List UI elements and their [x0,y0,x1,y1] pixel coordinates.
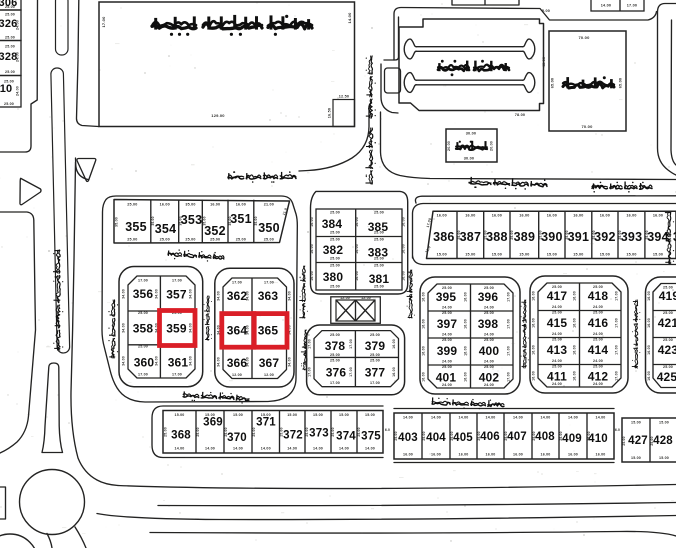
svg-text:70.00: 70.00 [581,124,593,129]
svg-text:34.00: 34.00 [122,323,126,333]
svg-text:129.00: 129.00 [211,113,225,118]
svg-text:16.00: 16.00 [421,292,425,302]
svg-text:34.00: 34.00 [216,357,220,367]
svg-text:16.00: 16.00 [596,453,606,457]
svg-text:15.00: 15.00 [626,253,636,257]
svg-text:17.00: 17.00 [615,345,619,355]
svg-text:25.00: 25.00 [552,285,562,289]
svg-text:15.00: 15.00 [313,413,323,417]
svg-text:24.00: 24.00 [593,305,603,309]
svg-text:16.00: 16.00 [464,319,468,329]
svg-text:24.00: 24.00 [484,306,494,310]
svg-text:357: 357 [166,288,187,302]
svg-text:25.00: 25.00 [210,238,220,242]
svg-text:25.00: 25.00 [370,359,380,363]
svg-text:16.00: 16.00 [355,271,359,281]
svg-text:24.00: 24.00 [593,332,603,336]
svg-text:25.00: 25.00 [457,230,461,239]
svg-text:391: 391 [568,230,589,244]
svg-text:25.00: 25.00 [484,365,494,369]
svg-text:25.00: 25.00 [422,431,426,440]
svg-text:12.00: 12.00 [232,373,242,377]
svg-text:16.00: 16.00 [355,217,359,227]
svg-text:379: 379 [365,339,386,353]
svg-text:17.00: 17.00 [507,346,511,356]
svg-text:16.00: 16.00 [647,371,651,381]
svg-text:15.00: 15.00 [653,253,663,257]
svg-text:372: 372 [283,430,303,442]
svg-text:16.00: 16.00 [310,244,314,254]
svg-text:364: 364 [227,324,248,338]
svg-text:34.00: 34.00 [155,289,159,299]
svg-text:14.00: 14.00 [365,447,375,451]
svg-text:15.00: 15.00 [631,456,641,460]
svg-text:16.00: 16.00 [421,346,425,356]
svg-text:25.00: 25.00 [559,431,563,440]
svg-text:25.00: 25.00 [4,80,14,84]
svg-text:34.00: 34.00 [246,291,250,301]
svg-text:15.00: 15.00 [631,421,641,425]
svg-text:16.00: 16.00 [402,244,406,254]
svg-text:427: 427 [628,435,648,447]
svg-text:15.00: 15.00 [437,253,447,257]
svg-text:15.00: 15.00 [205,413,215,417]
svg-text:15.00: 15.00 [339,413,349,417]
svg-text:34.00: 34.00 [287,357,291,367]
svg-text:17.00: 17.00 [615,371,619,381]
svg-text:17.00: 17.00 [264,281,274,285]
svg-text:17.00: 17.00 [172,372,182,376]
svg-text:16.00: 16.00 [459,453,469,457]
svg-text:25.00: 25.00 [252,427,256,436]
svg-text:399: 399 [437,344,458,358]
svg-text:25.00: 25.00 [331,427,335,436]
svg-text:25.00: 25.00 [264,238,274,242]
svg-text:21.00: 21.00 [264,203,274,207]
svg-text:34.00: 34.00 [189,323,193,333]
svg-text:16.00: 16.00 [392,339,396,349]
svg-text:16.00: 16.00 [531,318,535,328]
svg-text:25.00: 25.00 [663,338,673,342]
svg-text:25.00: 25.00 [4,102,14,106]
svg-text:17.00: 17.00 [615,318,619,328]
svg-text:16.00: 16.00 [402,271,406,281]
svg-text:404: 404 [426,432,446,444]
svg-text:377: 377 [365,366,386,380]
svg-text:380: 380 [323,270,344,284]
svg-text:25.00: 25.00 [330,257,340,261]
svg-text:392: 392 [594,230,615,244]
svg-text:17.00: 17.00 [349,339,353,349]
svg-text:25.00: 25.00 [593,337,603,341]
svg-text:35.00: 35.00 [179,216,183,225]
svg-text:367: 367 [259,356,280,370]
svg-text:354: 354 [155,222,176,236]
svg-text:25.00: 25.00 [5,36,15,40]
svg-text:425: 425 [657,370,676,384]
svg-text:25.00: 25.00 [394,431,398,440]
svg-text:25.00: 25.00 [374,264,384,268]
svg-text:14.00: 14.00 [175,447,185,451]
svg-text:25.00: 25.00 [442,338,452,342]
svg-text:17.00: 17.00 [615,291,619,301]
svg-text:387: 387 [460,230,481,244]
svg-text:395: 395 [436,290,457,304]
svg-text:25.00: 25.00 [280,427,284,436]
svg-text:14.00: 14.00 [568,416,578,420]
svg-text:24.00: 24.00 [442,383,452,387]
svg-text:17.00: 17.00 [627,4,638,8]
svg-text:25.00: 25.00 [484,230,488,239]
svg-text:35.00: 35.00 [202,216,206,225]
svg-text:17.00: 17.00 [349,367,353,377]
svg-text:24.00: 24.00 [484,360,494,364]
svg-text:16.00: 16.00 [541,453,551,457]
svg-text:17.00: 17.00 [370,381,380,385]
svg-text:25.00: 25.00 [236,238,246,242]
svg-text:408: 408 [535,431,555,443]
svg-text:25.00: 25.00 [484,338,494,342]
svg-text:25.00: 25.00 [370,353,380,357]
svg-text:17.00: 17.00 [307,339,311,349]
svg-text:25.00: 25.00 [5,70,15,74]
svg-text:306: 306 [0,0,17,9]
svg-text:16.00: 16.00 [402,217,406,227]
svg-text:388: 388 [486,230,507,244]
svg-text:25.00: 25.00 [370,333,380,337]
svg-text:25.00: 25.00 [330,285,340,289]
svg-text:24.00: 24.00 [16,52,20,62]
svg-text:16.00: 16.00 [573,291,577,301]
svg-text:24.00: 24.00 [16,86,20,96]
svg-text:20.00: 20.00 [490,141,494,151]
svg-text:405: 405 [453,432,473,444]
svg-text:403: 403 [398,432,418,444]
svg-text:24.00: 24.00 [552,332,562,336]
svg-text:16.00: 16.00 [600,214,610,218]
svg-text:428: 428 [653,435,673,447]
svg-text:34.00: 34.00 [287,291,291,301]
svg-text:15.00: 15.00 [573,253,583,257]
svg-text:25.00: 25.00 [127,238,137,242]
svg-text:16.00: 16.00 [531,371,535,381]
svg-text:368: 368 [171,430,191,442]
svg-text:34.00: 34.00 [189,356,193,366]
svg-text:15.00: 15.00 [659,421,669,425]
svg-text:25.00: 25.00 [305,427,309,436]
svg-text:12.50: 12.50 [361,296,371,300]
svg-text:34.00: 34.00 [216,291,220,301]
svg-text:16.00: 16.00 [531,345,535,355]
svg-text:34.00: 34.00 [155,356,159,366]
svg-text:25.00: 25.00 [442,286,452,290]
svg-text:25.00: 25.00 [374,257,384,261]
svg-text:374: 374 [336,431,356,443]
svg-text:12.50: 12.50 [339,95,350,99]
svg-text:15.00: 15.00 [287,413,297,417]
svg-text:14.00: 14.00 [205,447,215,451]
svg-text:14.00: 14.00 [313,447,323,451]
svg-text:6.0: 6.0 [385,428,390,432]
svg-text:370: 370 [227,432,247,444]
svg-text:25.00: 25.00 [510,230,514,239]
svg-text:17.00: 17.00 [307,367,311,377]
svg-text:419: 419 [659,289,676,303]
svg-text:25.00: 25.00 [330,238,340,242]
svg-text:396: 396 [478,290,499,304]
svg-text:361: 361 [168,356,189,370]
svg-text:35.00: 35.00 [115,217,119,227]
svg-text:360: 360 [134,356,155,370]
svg-text:78.00: 78.00 [515,113,526,117]
svg-text:413: 413 [547,343,568,357]
svg-text:24.00: 24.00 [552,382,562,386]
svg-text:16.00: 16.00 [421,319,425,329]
svg-text:6.0: 6.0 [615,428,620,432]
svg-text:24.00: 24.00 [593,359,603,363]
svg-text:415: 415 [547,316,568,330]
svg-text:25.00: 25.00 [374,285,384,289]
svg-text:362: 362 [227,289,248,303]
svg-text:25.00: 25.00 [185,238,195,242]
svg-text:16.00: 16.00 [160,203,170,207]
svg-text:34.00: 34.00 [246,357,250,367]
svg-text:17.00: 17.00 [101,16,106,28]
svg-text:12.00: 12.00 [264,373,274,377]
svg-text:16.00: 16.00 [431,453,441,457]
svg-text:25.00: 25.00 [650,436,654,445]
svg-text:16.00: 16.00 [573,345,577,355]
svg-text:16.00: 16.00 [573,371,577,381]
svg-text:14.00: 14.00 [287,447,297,451]
svg-text:365: 365 [258,324,279,338]
svg-text:16.00: 16.00 [310,217,314,227]
svg-text:16.00: 16.00 [392,367,396,377]
svg-text:16.00: 16.00 [626,214,636,218]
svg-text:16.00: 16.00 [573,214,583,218]
svg-text:359: 359 [166,322,187,336]
svg-text:25.00: 25.00 [663,365,673,369]
svg-text:25.00: 25.00 [618,230,622,239]
svg-text:16.00: 16.00 [486,453,496,457]
svg-text:15.00: 15.00 [492,253,502,257]
svg-text:24.00: 24.00 [484,333,494,337]
svg-text:70.00: 70.00 [578,35,590,40]
svg-text:25.00: 25.00 [532,431,536,440]
svg-text:16.00: 16.00 [465,214,475,218]
svg-text:24.00: 24.00 [484,383,494,387]
svg-text:24.00: 24.00 [552,359,562,363]
svg-text:16.00: 16.00 [236,203,246,207]
svg-text:17.00: 17.00 [172,279,182,283]
svg-text:16.00: 16.00 [519,214,529,218]
svg-text:15.00: 15.00 [261,413,271,417]
svg-text:25.00: 25.00 [622,436,626,445]
svg-text:352: 352 [204,224,225,238]
svg-text:353: 353 [181,213,202,227]
svg-text:25.00: 25.00 [477,431,481,440]
svg-text:25.00: 25.00 [663,311,673,315]
svg-text:25.00: 25.00 [645,230,649,239]
svg-text:16.00: 16.00 [513,453,523,457]
svg-text:25.00: 25.00 [5,45,15,49]
svg-text:363: 363 [258,289,279,303]
svg-text:35.00: 35.00 [254,216,258,225]
svg-text:416: 416 [588,316,609,330]
svg-text:15.00: 15.00 [519,253,529,257]
svg-text:14.00: 14.00 [261,447,271,451]
svg-text:25.00: 25.00 [593,285,603,289]
svg-text:25.00: 25.00 [138,311,148,315]
svg-text:16.00: 16.00 [653,214,663,218]
svg-text:24.00: 24.00 [442,360,452,364]
svg-text:24.00: 24.00 [593,382,603,386]
svg-text:16.00: 16.00 [464,292,468,302]
svg-text:15.00: 15.00 [600,253,610,257]
svg-text:15.00: 15.00 [365,413,375,417]
svg-text:30.00: 30.00 [466,132,477,136]
svg-text:14.00: 14.00 [596,416,606,420]
svg-text:15.00: 15.00 [659,456,669,460]
svg-text:34.00: 34.00 [122,289,126,299]
svg-text:350: 350 [258,221,279,235]
svg-text:14.00: 14.00 [513,416,523,420]
svg-text:15.00: 15.00 [175,413,185,417]
svg-text:423: 423 [658,343,676,357]
svg-text:25.00: 25.00 [330,333,340,337]
svg-text:25.00: 25.00 [565,230,569,239]
svg-text:417: 417 [547,289,568,303]
svg-text:351: 351 [230,212,251,226]
svg-text:12.50: 12.50 [340,296,350,300]
svg-text:25.00: 25.00 [374,211,384,215]
svg-text:25.00: 25.00 [357,427,361,436]
svg-text:24.00: 24.00 [442,333,452,337]
svg-text:14.00: 14.00 [431,416,441,420]
svg-text:25.00: 25.00 [539,230,543,239]
svg-text:410: 410 [588,433,608,445]
svg-text:24.00: 24.00 [442,306,452,310]
svg-text:34.00: 34.00 [189,289,193,299]
svg-text:373: 373 [309,428,329,440]
svg-text:25.00: 25.00 [593,310,603,314]
svg-text:10: 10 [0,83,12,95]
svg-text:393: 393 [621,230,642,244]
svg-text:17.00: 17.00 [507,372,511,382]
svg-text:17.00: 17.00 [232,281,242,285]
svg-text:356: 356 [133,287,154,301]
svg-text:384: 384 [322,217,343,231]
svg-text:24.00: 24.00 [16,20,20,30]
svg-text:25.00: 25.00 [196,427,200,436]
svg-text:14.00: 14.00 [459,416,469,420]
svg-text:14.00: 14.00 [541,416,551,420]
svg-text:17.00: 17.00 [138,372,148,376]
svg-text:376: 376 [326,366,347,380]
svg-text:14.00: 14.00 [339,447,349,451]
svg-text:16.00: 16.00 [355,244,359,254]
svg-text:35.00: 35.00 [228,216,232,225]
svg-text:421: 421 [658,316,676,330]
svg-text:25.00: 25.00 [592,230,596,239]
svg-text:418: 418 [588,289,609,303]
svg-text:16.00: 16.00 [464,372,468,382]
svg-text:25.00: 25.00 [330,211,340,215]
svg-text:17.00: 17.00 [330,381,340,385]
svg-text:25.00: 25.00 [374,238,384,242]
svg-text:414: 414 [588,343,609,357]
svg-text:400: 400 [479,344,500,358]
svg-text:20.00: 20.00 [447,141,451,151]
svg-text:16.00: 16.00 [492,214,502,218]
svg-text:25.00: 25.00 [164,427,168,437]
svg-text:17.00: 17.00 [138,279,148,283]
svg-text:371: 371 [256,417,276,429]
svg-text:30.00: 30.00 [464,157,475,161]
svg-text:25.00: 25.00 [552,364,562,368]
svg-text:25.00: 25.00 [330,353,340,357]
svg-text:378: 378 [325,339,346,353]
svg-text:25.00: 25.00 [330,264,340,268]
svg-text:25.00: 25.00 [552,310,562,314]
svg-text:14.00: 14.00 [233,447,243,451]
svg-text:25.00: 25.00 [593,364,603,368]
svg-text:14.00: 14.00 [601,4,612,8]
svg-text:65.00: 65.00 [551,78,555,89]
svg-text:369: 369 [203,417,223,429]
svg-text:16.00: 16.00 [310,271,314,281]
svg-text:16.00: 16.00 [421,372,425,382]
svg-text:16.00: 16.00 [568,453,578,457]
svg-text:25.00: 25.00 [484,286,494,290]
svg-text:14.00: 14.00 [403,416,413,420]
svg-text:382: 382 [323,243,344,257]
svg-text:25.00: 25.00 [5,13,15,17]
svg-text:25.00: 25.00 [450,431,454,440]
svg-text:15.00: 15.00 [233,413,243,417]
svg-text:407: 407 [507,431,527,443]
svg-text:375: 375 [361,431,381,443]
svg-text:389: 389 [514,230,535,244]
svg-text:16.00: 16.00 [403,453,413,457]
svg-text:390: 390 [541,230,562,244]
svg-text:5.00: 5.00 [542,9,550,13]
svg-text:398: 398 [478,317,499,331]
svg-text:48.00: 48.00 [542,57,546,68]
svg-text:366: 366 [227,356,248,370]
svg-text:24.00: 24.00 [552,305,562,309]
svg-text:16.00: 16.00 [210,203,220,207]
svg-text:34.00: 34.00 [246,325,250,335]
svg-text:386: 386 [433,230,454,244]
svg-text:16.00: 16.00 [647,291,651,301]
svg-text:16.00: 16.00 [647,345,651,355]
svg-text:25.00: 25.00 [138,345,148,349]
svg-text:25.00: 25.00 [663,286,673,290]
svg-text:35.00: 35.00 [151,216,155,225]
svg-text:25.00: 25.00 [442,311,452,315]
svg-text:358: 358 [133,322,154,336]
svg-text:409: 409 [562,433,582,445]
svg-text:16.00: 16.00 [437,214,447,218]
svg-text:406: 406 [480,431,500,443]
svg-text:397: 397 [437,317,458,331]
svg-text:25.00: 25.00 [127,203,137,207]
svg-text:17.00: 17.00 [507,319,511,329]
svg-text:25.00: 25.00 [504,431,508,440]
svg-text:15.00: 15.00 [547,253,557,257]
svg-text:394: 394 [647,230,668,244]
